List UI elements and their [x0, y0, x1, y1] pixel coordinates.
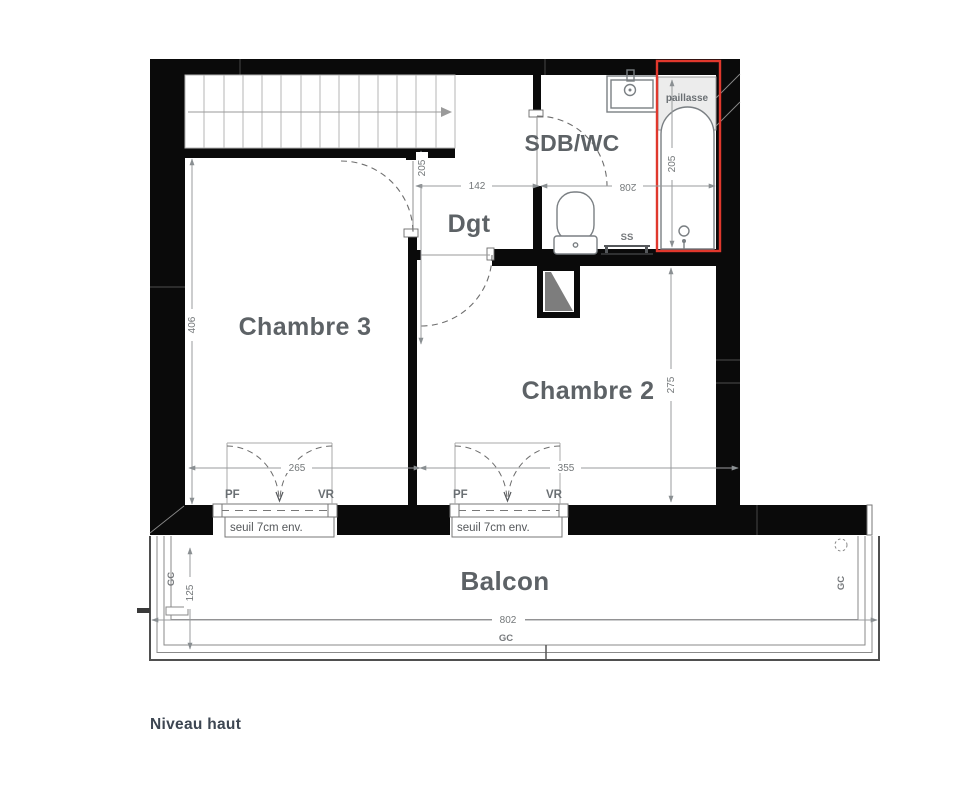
window2-vr-label: VR	[546, 489, 563, 501]
gutter-label-bottom: GC	[499, 633, 513, 644]
dim-dgt-width: 142	[469, 181, 486, 192]
wall-bottom-b	[337, 505, 450, 535]
downpipe-symbol	[835, 539, 847, 551]
room-label-balcon: Balcon	[460, 566, 549, 596]
wall-sdb-stub	[533, 75, 541, 115]
window1-sill-label: seuil 7cm env.	[230, 522, 303, 534]
gutter-label-right: GC	[836, 576, 847, 590]
room-label-sdb-wc: SDB/WC	[524, 130, 619, 156]
door-arc-chambre2	[421, 255, 492, 326]
wall-left	[150, 59, 185, 535]
dim-window1-width: 265	[289, 463, 306, 474]
floor-plan-page: paillasse SS PF VR seuil 7cm env. PF VR …	[0, 0, 961, 800]
window2-pf-label: PF	[453, 489, 468, 501]
window1-vr-label: VR	[318, 489, 335, 501]
wall-bottom-a	[150, 505, 213, 535]
room-label-dgt: Dgt	[448, 210, 491, 238]
door-arc-chambre3	[341, 161, 413, 233]
dim-dgt-length: 205	[417, 159, 428, 176]
wall-bottom-c	[568, 505, 867, 535]
gutter-label-left: GC	[166, 572, 177, 586]
wall-top	[150, 59, 740, 75]
dim-balcony-depth: 125	[185, 584, 196, 601]
dim-chambre3-depth: 406	[187, 316, 198, 333]
dimensions: 142 208 205 205 406 275 265 355 125 80	[152, 80, 877, 649]
dim-sdb-width: 208	[619, 181, 636, 192]
wall-divider-bedrooms	[408, 233, 417, 505]
window-chambre2: PF VR seuil 7cm env.	[450, 443, 568, 537]
dim-bath-length: 205	[667, 155, 678, 172]
window-chambre3: PF VR seuil 7cm env.	[213, 443, 337, 537]
level-title: Niveau haut	[150, 716, 241, 733]
toilet-tank	[554, 236, 597, 254]
dim-balcony-width: 802	[500, 615, 517, 626]
balcony-outer-rail	[150, 536, 879, 660]
toilet-bowl	[557, 192, 594, 242]
staircase	[185, 75, 455, 148]
floor-plan-drawing: paillasse SS PF VR seuil 7cm env. PF VR …	[0, 0, 961, 800]
dim-window2-width: 355	[558, 463, 575, 474]
window2-sill-label: seuil 7cm env.	[457, 522, 530, 534]
room-label-chambre2: Chambre 2	[522, 377, 655, 405]
door-hinge-chambre2	[411, 250, 421, 260]
wall-sdb-left	[533, 186, 542, 250]
door-hinge-chambre3	[406, 149, 416, 160]
window1-pf-label: PF	[225, 489, 240, 501]
dim-chambre2-depth: 275	[666, 376, 677, 393]
balcony: GC GC GC	[137, 536, 879, 660]
room-label-chambre3: Chambre 3	[239, 313, 372, 341]
towel-rail-label: SS	[621, 232, 634, 243]
